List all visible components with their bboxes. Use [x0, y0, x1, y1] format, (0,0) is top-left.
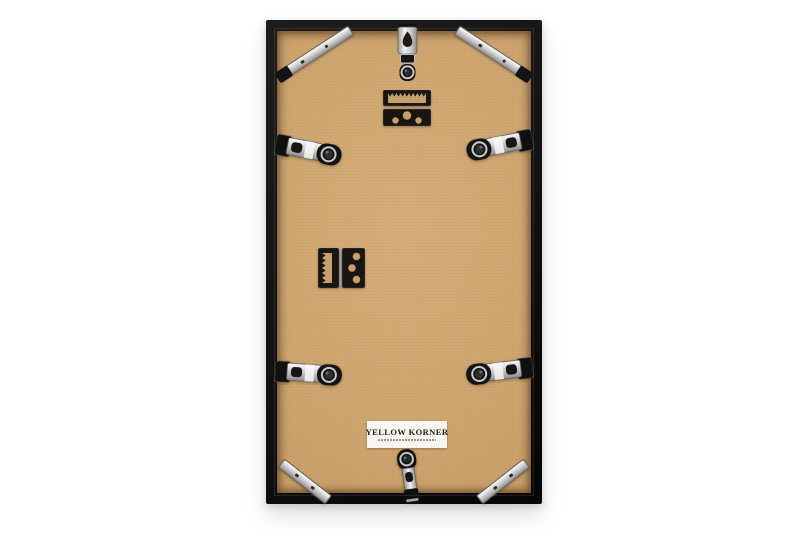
keyhole-hanger-icon — [394, 24, 421, 82]
sawtooth-hanger-portrait-icon — [383, 90, 431, 126]
label-tagline-microtext — [378, 439, 436, 441]
brand-label: YELLOW KORNER — [367, 421, 447, 448]
frame-back: YELLOW KORNER — [266, 20, 542, 504]
flex-clip-lower-left-icon — [274, 357, 344, 390]
sawtooth-hanger-landscape-icon — [318, 248, 365, 288]
brand-label-text: YELLOW KORNER — [366, 428, 449, 437]
product-photo-stage: YELLOW KORNER — [0, 0, 800, 533]
